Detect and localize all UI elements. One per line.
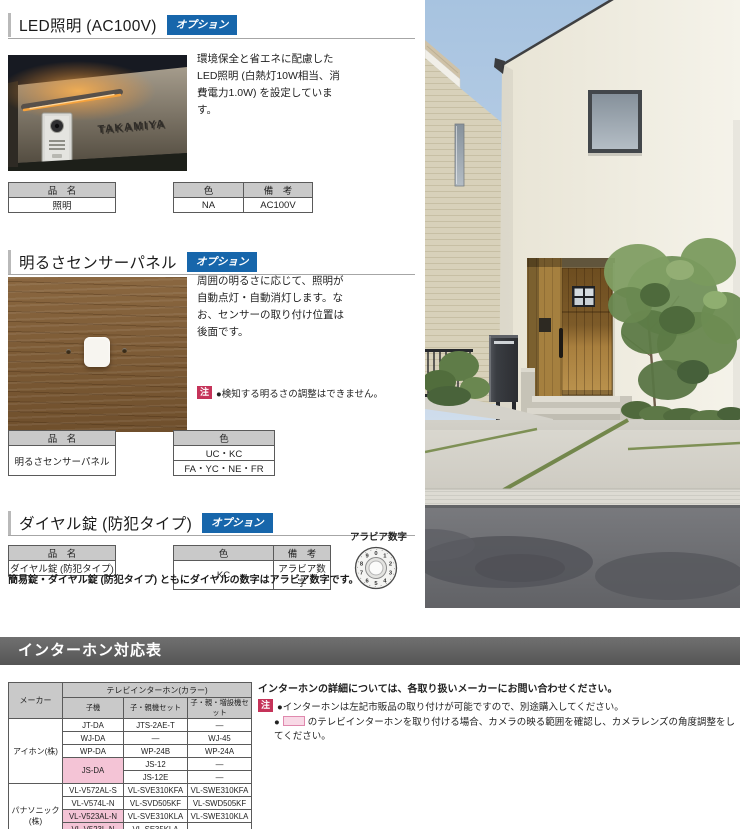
- model-cell: VL-SWE310KLA: [188, 810, 252, 823]
- name-table-value: 照明: [9, 198, 116, 213]
- intercom-unit: [42, 113, 72, 163]
- svg-text:7: 7: [360, 571, 363, 577]
- intercom-note-1: 注 ●インターホンは左記市販品の取り付けが可能ですので、別途購入してください。: [258, 699, 736, 713]
- color-row: UC・KC: [174, 446, 275, 461]
- intercom-note-2-text: のテレビインターホンを取り付ける場合、カメラの映る範囲を確認し、カメラレンズの角…: [274, 717, 735, 742]
- doorbell-plate: [539, 318, 551, 332]
- model-cell: VL-SVE310KLA: [124, 810, 188, 823]
- led-photo: TAKAMIYA TAKAMIYA: [8, 55, 187, 171]
- option-badge: オプション: [202, 513, 273, 533]
- model-cell-highlighted: VL-V523L-N: [63, 823, 124, 829]
- table-row: アイホン(株) JT-DA JTS-2AE-T ―: [9, 719, 252, 732]
- color-header: 色: [174, 546, 274, 561]
- post-slot: [494, 341, 514, 344]
- sub-header: 子・親機セット: [124, 698, 188, 719]
- model-cell: ―: [188, 771, 252, 784]
- upper-window: [588, 90, 642, 156]
- option-badge: オプション: [187, 252, 258, 272]
- sub-header: 子機: [63, 698, 124, 719]
- sensor-color-table: 色 UC・KC FA・YC・NE・FR: [173, 430, 275, 476]
- model-cell: ―: [188, 823, 252, 829]
- door-window: [572, 286, 595, 307]
- option-badge: オプション: [167, 15, 238, 35]
- screw-icon: [122, 348, 127, 353]
- model-cell: WP-24A: [188, 745, 252, 758]
- intercom-note-2-prefix: ●: [274, 717, 280, 728]
- maker-cell: アイホン(株): [9, 719, 63, 784]
- sensor-panel-photo: [8, 277, 187, 432]
- sensor-note: 注 ●検知する明るさの調整はできません。: [197, 386, 412, 400]
- sensor-name-table: 品 名 明るさセンサーパネル: [8, 430, 116, 476]
- catalog-page: LED照明 (AC100V) オプション TAKAMIYA TA: [0, 0, 740, 829]
- model-cell: ―: [188, 719, 252, 732]
- intercom-section-bar: インターホン対応表: [0, 637, 740, 665]
- model-cell: WJ-45: [188, 732, 252, 745]
- dial-note: 簡易錠・ダイヤル錠 (防犯タイプ) ともにダイヤルの数字はアラビア数字です。: [8, 571, 359, 586]
- remarks-value: AC100V: [244, 198, 313, 213]
- svg-text:0: 0: [374, 551, 377, 557]
- model-cell: JTS-2AE-T: [124, 719, 188, 732]
- model-cell: JS-12: [124, 758, 188, 771]
- remarks-header: 備 考: [274, 546, 331, 561]
- section-title-dial: ダイヤル錠 (防犯タイプ): [19, 512, 192, 534]
- door-handle: [559, 328, 563, 358]
- section-title-sensor: 明るさセンサーパネル: [19, 251, 177, 273]
- name-table-value: 明るさセンサーパネル: [9, 446, 116, 476]
- model-cell: WJ-DA: [63, 732, 124, 745]
- name-table-header: 品 名: [9, 546, 116, 561]
- intercom-contact-note: インターホンの詳細については、各取り扱いメーカーにお問い合わせください。: [258, 680, 736, 695]
- section-marker-bar: [8, 511, 11, 535]
- model-cell-highlighted: JS-DA: [63, 758, 124, 784]
- model-cell: JS-12E: [124, 771, 188, 784]
- model-cell: ―: [188, 758, 252, 771]
- table-row: パナソニック(株) VL-V572AL-S VL-SVE310KFA VL-SW…: [9, 784, 252, 797]
- model-cell: WP-24B: [124, 745, 188, 758]
- model-cell: VL-V572AL-S: [63, 784, 124, 797]
- section-marker-bar: [8, 13, 11, 37]
- section-rule: [8, 38, 415, 39]
- color-value: NA: [174, 198, 244, 213]
- dial-label: アラビア数字: [350, 529, 407, 543]
- model-cell: VL-SVE310KFA: [124, 784, 188, 797]
- brightness-sensor: [84, 337, 110, 367]
- model-cell: VL-SVD505KF: [124, 797, 188, 810]
- model-cell: VL-SWD505KF: [188, 797, 252, 810]
- screw-icon: [66, 349, 71, 354]
- model-cell: WP-DA: [63, 745, 124, 758]
- section-header-led: LED照明 (AC100V) オプション: [8, 13, 237, 37]
- led-name-table: 品 名 照明: [8, 182, 116, 213]
- house-photo: [425, 0, 740, 608]
- sensor-note-text: ●検知する明るさの調整はできません。: [216, 386, 383, 400]
- maker-cell: パナソニック(株): [9, 784, 63, 829]
- group-header: テレビインターホン(カラー): [63, 683, 252, 698]
- model-cell: VL-V574L-N: [63, 797, 124, 810]
- model-cell: VL-SWE310KFA: [188, 784, 252, 797]
- section-header-sensor: 明るさセンサーパネル オプション: [8, 250, 257, 274]
- model-cell: ―: [124, 732, 188, 745]
- intercom-note-1-text: ●インターホンは左記市販品の取り付けが可能ですので、別途購入してください。: [277, 699, 624, 713]
- model-cell: JT-DA: [63, 719, 124, 732]
- intercom-table: メーカー テレビインターホン(カラー) 子機 子・親機セット 子・親・増設機セッ…: [8, 682, 252, 829]
- color-header: 色: [174, 431, 275, 446]
- pink-highlight-swatch: [283, 716, 305, 726]
- sub-header: 子・親・増設機セット: [188, 698, 252, 719]
- color-row: FA・YC・NE・FR: [174, 461, 275, 476]
- led-description: 環境保全と省エネに配慮したLED照明 (白熱灯10W相当、消費電力1.0W) を…: [197, 51, 349, 119]
- model-cell-highlighted: VL-V523AL-N: [63, 810, 124, 823]
- led-spec-table: 色 備 考 NA AC100V: [173, 182, 313, 213]
- front-door: [559, 268, 612, 395]
- road: [425, 505, 740, 608]
- dial-illustration: 0123456789: [352, 544, 400, 592]
- model-cell: VL-SE35KLA: [124, 823, 188, 829]
- name-table-header: 品 名: [9, 431, 116, 446]
- entry-recess: [527, 258, 615, 397]
- intercom-note-2: ●のテレビインターホンを取り付ける場合、カメラの映る範囲を確認し、カメラレンズの…: [274, 716, 736, 745]
- section-marker-bar: [8, 250, 11, 274]
- note-badge: 注: [197, 386, 212, 399]
- section-header-dial: ダイヤル錠 (防犯タイプ) オプション: [8, 511, 273, 535]
- intercom-notes: インターホンの詳細については、各取り扱いメーカーにお問い合わせください。 注 ●…: [258, 680, 736, 745]
- section-title-led: LED照明 (AC100V): [19, 14, 157, 36]
- remarks-header: 備 考: [244, 183, 313, 198]
- note-badge: 注: [258, 699, 273, 712]
- driveway: [425, 420, 740, 505]
- name-table-header: 品 名: [9, 183, 116, 198]
- svg-text:2: 2: [389, 561, 392, 567]
- color-header: 色: [174, 183, 244, 198]
- sensor-description: 周囲の明るさに応じて、照明が自動点灯・自動消灯します。なお、センサーの取り付け位…: [197, 273, 349, 341]
- maker-header: メーカー: [9, 683, 63, 719]
- tree-shadow: [595, 552, 740, 600]
